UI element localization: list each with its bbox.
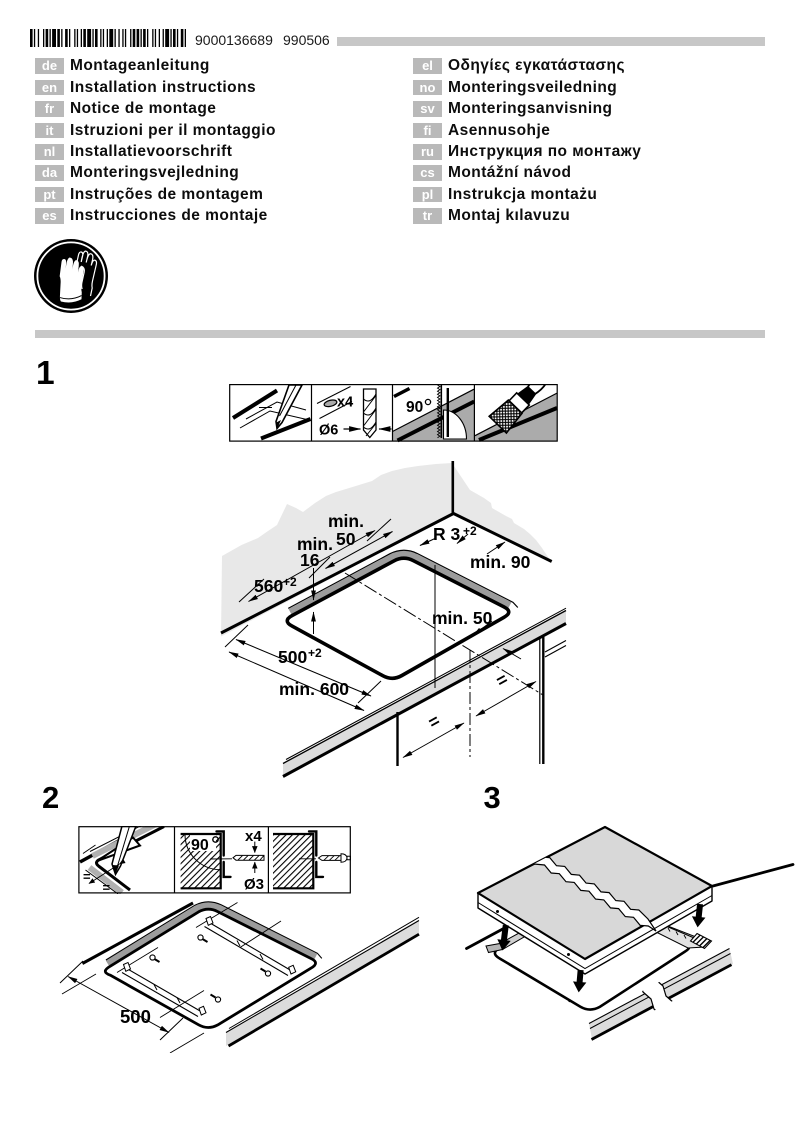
svg-text:500: 500 bbox=[278, 647, 307, 667]
svg-text:+2: +2 bbox=[463, 524, 477, 538]
svg-text:=: = bbox=[425, 710, 444, 732]
svg-text:=: = bbox=[493, 669, 512, 691]
svg-text:560: 560 bbox=[254, 576, 283, 596]
svg-text:=: = bbox=[83, 869, 91, 884]
svg-text:+2: +2 bbox=[283, 575, 297, 589]
svg-text:min. 50: min. 50 bbox=[432, 608, 493, 628]
svg-text:x4: x4 bbox=[245, 828, 262, 845]
svg-text:50: 50 bbox=[336, 529, 356, 549]
svg-text:16: 16 bbox=[300, 550, 320, 570]
svg-text:Ø3: Ø3 bbox=[244, 876, 264, 893]
svg-text:x4: x4 bbox=[337, 395, 353, 411]
svg-text:500: 500 bbox=[120, 1006, 151, 1027]
svg-text:min. 90: min. 90 bbox=[470, 552, 531, 572]
svg-text:min.: min. bbox=[328, 511, 364, 531]
svg-text:Ø6: Ø6 bbox=[319, 423, 338, 439]
svg-text:min. 600: min. 600 bbox=[279, 679, 349, 699]
svg-text:+2: +2 bbox=[308, 646, 322, 660]
svg-text:=: = bbox=[103, 880, 111, 894]
svg-text:R 3: R 3 bbox=[433, 524, 461, 544]
svg-text:90: 90 bbox=[406, 399, 423, 416]
svg-text:90: 90 bbox=[191, 837, 209, 854]
